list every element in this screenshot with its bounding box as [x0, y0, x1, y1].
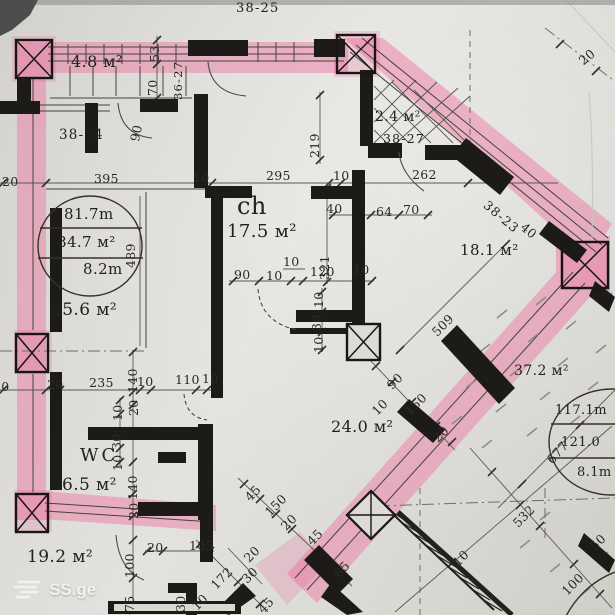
- dim-label: 30: [311, 314, 324, 331]
- room-label-balcony-top-right: 2.4 м²: [375, 110, 421, 124]
- hatched-wall: [378, 500, 512, 615]
- dim-label: 219: [309, 133, 322, 158]
- dim-label: 70: [403, 204, 420, 217]
- stamp-left-line2: 84.7 м²: [57, 235, 116, 250]
- dim-label: 489: [125, 243, 138, 268]
- dim-label: 90: [234, 269, 251, 282]
- room-label-living-area: 17.5 м²: [227, 223, 297, 241]
- room-label-balcony-top-left: 4.8 м²: [71, 54, 123, 70]
- room-label-hall: 24.0 м²: [331, 419, 393, 435]
- dim-label: 53: [149, 45, 162, 62]
- room-label-left-room: 25.6 м²: [51, 302, 117, 319]
- dim-label: 110: [175, 374, 200, 387]
- room-label-neighbor: 37.2 м²: [514, 364, 569, 378]
- dim-label: 20: [147, 542, 164, 555]
- watermark-text: SS.ge: [49, 580, 96, 600]
- dim-label: 262: [412, 169, 437, 182]
- dim-label: 10: [193, 172, 210, 185]
- dim-label: 75: [124, 595, 137, 612]
- dim-label: 295: [266, 170, 291, 183]
- dim-label: 120: [310, 266, 335, 279]
- stamp-left-line1: 81.7m: [64, 207, 114, 222]
- stamp-left-line3: 8.2m: [83, 262, 123, 277]
- dim-label: 140: [127, 368, 140, 393]
- dim-label: 10: [202, 373, 219, 386]
- dim-label: 20: [47, 379, 64, 392]
- ss-ge-logo-icon: [13, 578, 43, 602]
- unit-code-right-balcony: 38-27: [383, 133, 425, 146]
- watermark: SS.ge: [13, 578, 96, 602]
- dim-label: 30: [111, 433, 124, 450]
- dim-label: 70: [147, 79, 160, 96]
- dim-label: 10: [313, 336, 326, 353]
- dim-label: 10: [353, 264, 370, 277]
- dim-label: 20: [2, 176, 19, 189]
- dim-label: 235: [89, 377, 114, 390]
- dim-label: 30: [175, 595, 188, 612]
- dim-label: 90: [129, 124, 145, 143]
- stamp-right-line3: 8.1m: [577, 466, 612, 479]
- dim-label: 10: [266, 270, 283, 283]
- dim-label: 10: [333, 170, 350, 183]
- dim-label: 100: [124, 553, 137, 578]
- unit-code-top: 38-25: [236, 2, 279, 15]
- dim-label: 20: [128, 399, 141, 416]
- dim-label: 10: [112, 454, 125, 471]
- dim-label: 140: [127, 475, 140, 500]
- dim-label: 10: [313, 291, 326, 308]
- unit-code-left-vertical: 36-27: [173, 61, 185, 100]
- room-label-right-room: 18.1 м²: [460, 243, 519, 258]
- dim-label: 10: [283, 256, 300, 269]
- photo-corner: [0, 0, 38, 36]
- photo-edge: [0, 0, 615, 5]
- floor-plan-photo: 38-25 38-24 38-27 36-27 38-23 4.8 м² 2.4…: [0, 0, 615, 615]
- dim-label: 40: [326, 203, 343, 216]
- unit-code-left: 38-24: [59, 129, 104, 143]
- dim-label: 64: [376, 206, 393, 219]
- dim-label: 10: [0, 381, 10, 394]
- room-label-bottom-left: 19.2 м²: [27, 549, 93, 566]
- room-label-living-name: ch: [237, 194, 267, 218]
- room-label-wc-area: 6.5 м²: [62, 477, 117, 494]
- stamp-right-line1: 117.1m: [555, 404, 607, 417]
- dim-label: 20: [128, 502, 141, 519]
- dim-label: 105: [189, 540, 214, 553]
- dim-label: 10: [112, 404, 125, 421]
- dim-label: 395: [94, 173, 119, 186]
